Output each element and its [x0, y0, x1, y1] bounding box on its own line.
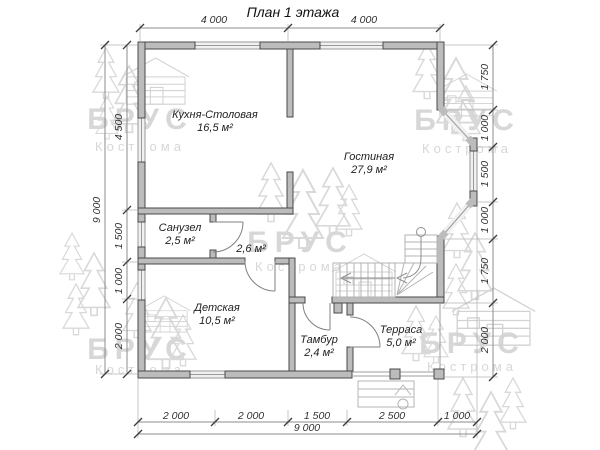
room-area: 10,5 м² — [137, 315, 297, 328]
dim-bottom-4: 2 500 — [362, 410, 422, 422]
room-label-terrace: Терраса 5,0 м² — [321, 324, 481, 350]
room-name: Кухня-Столовая — [135, 109, 295, 122]
room-area: 5,0 м² — [321, 337, 481, 350]
dim-bottom-1: 2 000 — [146, 410, 206, 422]
room-area: 16,5 м² — [135, 122, 295, 135]
floor-plan-page: БРУС Кострома БРУС Кострома БРУС Костром… — [0, 0, 600, 450]
room-area: 27,9 м² — [289, 164, 449, 177]
dim-bottom-5: 1 000 — [427, 410, 487, 422]
dim-top-2: 4 000 — [334, 14, 394, 26]
floor-plan-drawing — [0, 0, 600, 450]
dim-right-5: 1 750 — [479, 241, 491, 301]
room-name: Терраса — [321, 324, 481, 337]
dim-bottom-2: 2 000 — [221, 410, 281, 422]
room-name: Санузел — [100, 222, 260, 235]
dim-left-4: 2 000 — [113, 306, 125, 366]
room-name: Гостиная — [289, 151, 449, 164]
room-label-living: Гостиная 27,9 м² — [289, 151, 449, 177]
room-label-kitchen-dining: Кухня-Столовая 16,5 м² — [135, 109, 295, 135]
dim-top-1: 4 000 — [184, 14, 244, 26]
dim-left-3: 1 000 — [113, 251, 125, 311]
room-name: Детская — [137, 302, 297, 315]
dim-left-1: 4 500 — [113, 97, 125, 157]
dim-bottom-3: 1 500 — [287, 410, 347, 422]
room-area: 2,6 м² — [171, 243, 331, 256]
room-label-kids: Детская 10,5 м² — [137, 302, 297, 328]
porch-steps-icon — [358, 381, 414, 409]
room-label-hall: 2,6 м² — [171, 243, 331, 256]
dim-bottom-total: 9 000 — [277, 422, 337, 434]
